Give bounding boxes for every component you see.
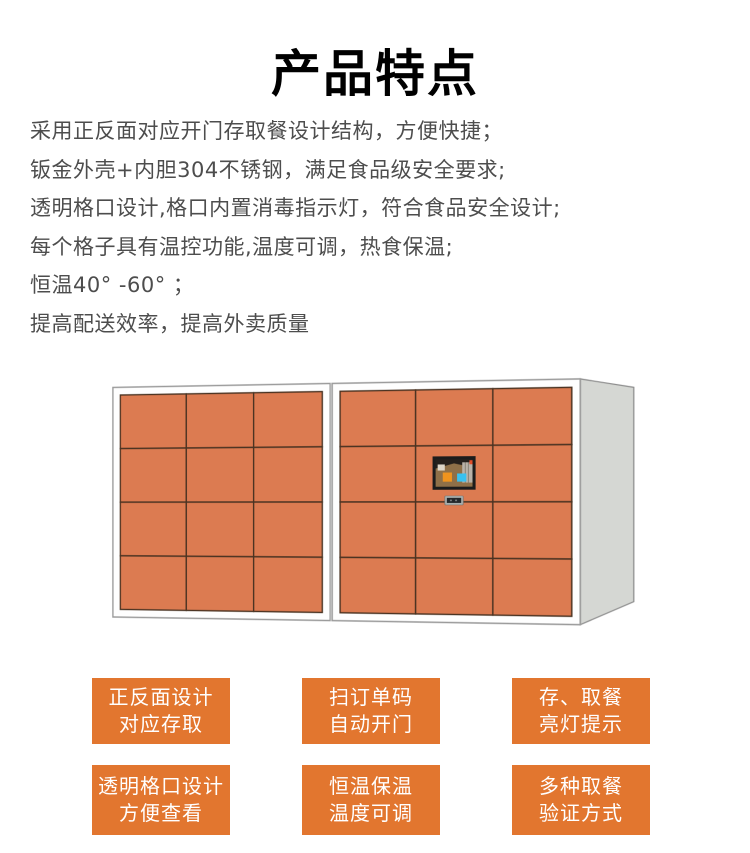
locker-door [186,447,253,502]
locker-door [416,389,493,446]
locker-door [493,445,572,502]
feature-tag: 存、取餐亮灯提示 [512,678,650,744]
locker-door [186,502,253,557]
feature-tag-line1: 恒温保温 [329,773,413,800]
feature-tag-line1: 透明格口设计 [98,773,224,800]
feature-tag: 正反面设计对应存取 [92,678,230,744]
feature-line: 透明格口设计,格口内置消毒指示灯，符合食品安全设计; [30,189,720,228]
locker-door [120,556,186,611]
locker-door [340,557,416,614]
locker-door [493,502,572,559]
feature-tag-line2: 亮灯提示 [539,711,623,738]
page-title: 产品特点 [0,34,750,106]
locker-door [254,502,323,557]
cabinet-screen [433,456,476,490]
feature-line: 采用正反面对应开门存取餐设计结构，方便快捷； [30,112,720,151]
feature-tag-line2: 对应存取 [119,711,203,738]
feature-tag-line1: 多种取餐 [539,773,623,800]
locker-door [493,387,572,445]
locker-door [340,502,416,558]
feature-tag-line2: 温度可调 [329,800,413,827]
feature-line: 每个格子具有温控功能,温度可调，热食保温; [30,228,720,267]
locker-door [340,446,416,502]
locker-door [254,447,323,502]
locker-door [493,558,572,616]
locker-door [254,392,323,448]
locker-door [120,448,186,502]
feature-tag-line1: 扫订单码 [329,684,413,711]
locker-door [120,394,186,449]
locker-door [186,393,253,448]
locker-door [254,557,323,613]
feature-tag: 多种取餐验证方式 [512,765,650,835]
feature-line: 恒温40° -60° ； [30,266,720,305]
locker-cabinet-illustration [88,362,647,654]
feature-tag: 扫订单码自动开门 [302,678,440,744]
locker-door [416,502,493,559]
feature-tag-line2: 自动开门 [329,711,413,738]
feature-tag-line1: 存、取餐 [539,684,623,711]
scanner [445,496,463,505]
locker-door [186,556,253,611]
locker-door [416,558,493,615]
feature-tag: 透明格口设计方便查看 [92,765,230,835]
feature-description: 采用正反面对应开门存取餐设计结构，方便快捷；钣金外壳+内胆304不锈钢，满足食品… [30,112,720,343]
feature-tag-line2: 验证方式 [539,800,623,827]
feature-line: 提高配送效率，提高外卖质量 [30,305,720,344]
locker-door [340,390,416,447]
cabinet-svg [88,362,647,654]
feature-tag: 恒温保温温度可调 [302,765,440,835]
feature-line: 钣金外壳+内胆304不锈钢，满足食品级安全要求; [30,151,720,190]
feature-tag-line2: 方便查看 [119,800,203,827]
feature-tag-line1: 正反面设计 [109,684,214,711]
cabinet-side-panel [580,378,634,626]
locker-door [120,502,186,556]
